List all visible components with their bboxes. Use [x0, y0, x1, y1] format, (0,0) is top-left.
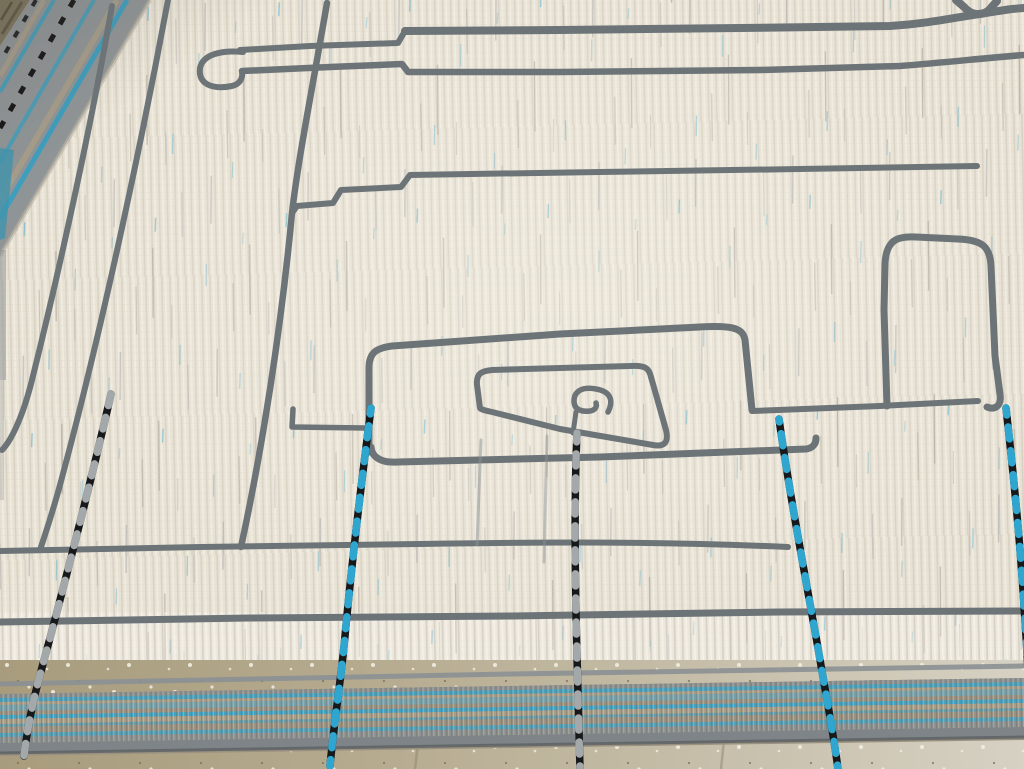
- rug-photo: [0, 0, 1024, 769]
- cord-gray-black-center: [575, 433, 580, 769]
- rug-photo-canvas: [0, 0, 1024, 769]
- border-left-sliver-fade: [0, 380, 4, 500]
